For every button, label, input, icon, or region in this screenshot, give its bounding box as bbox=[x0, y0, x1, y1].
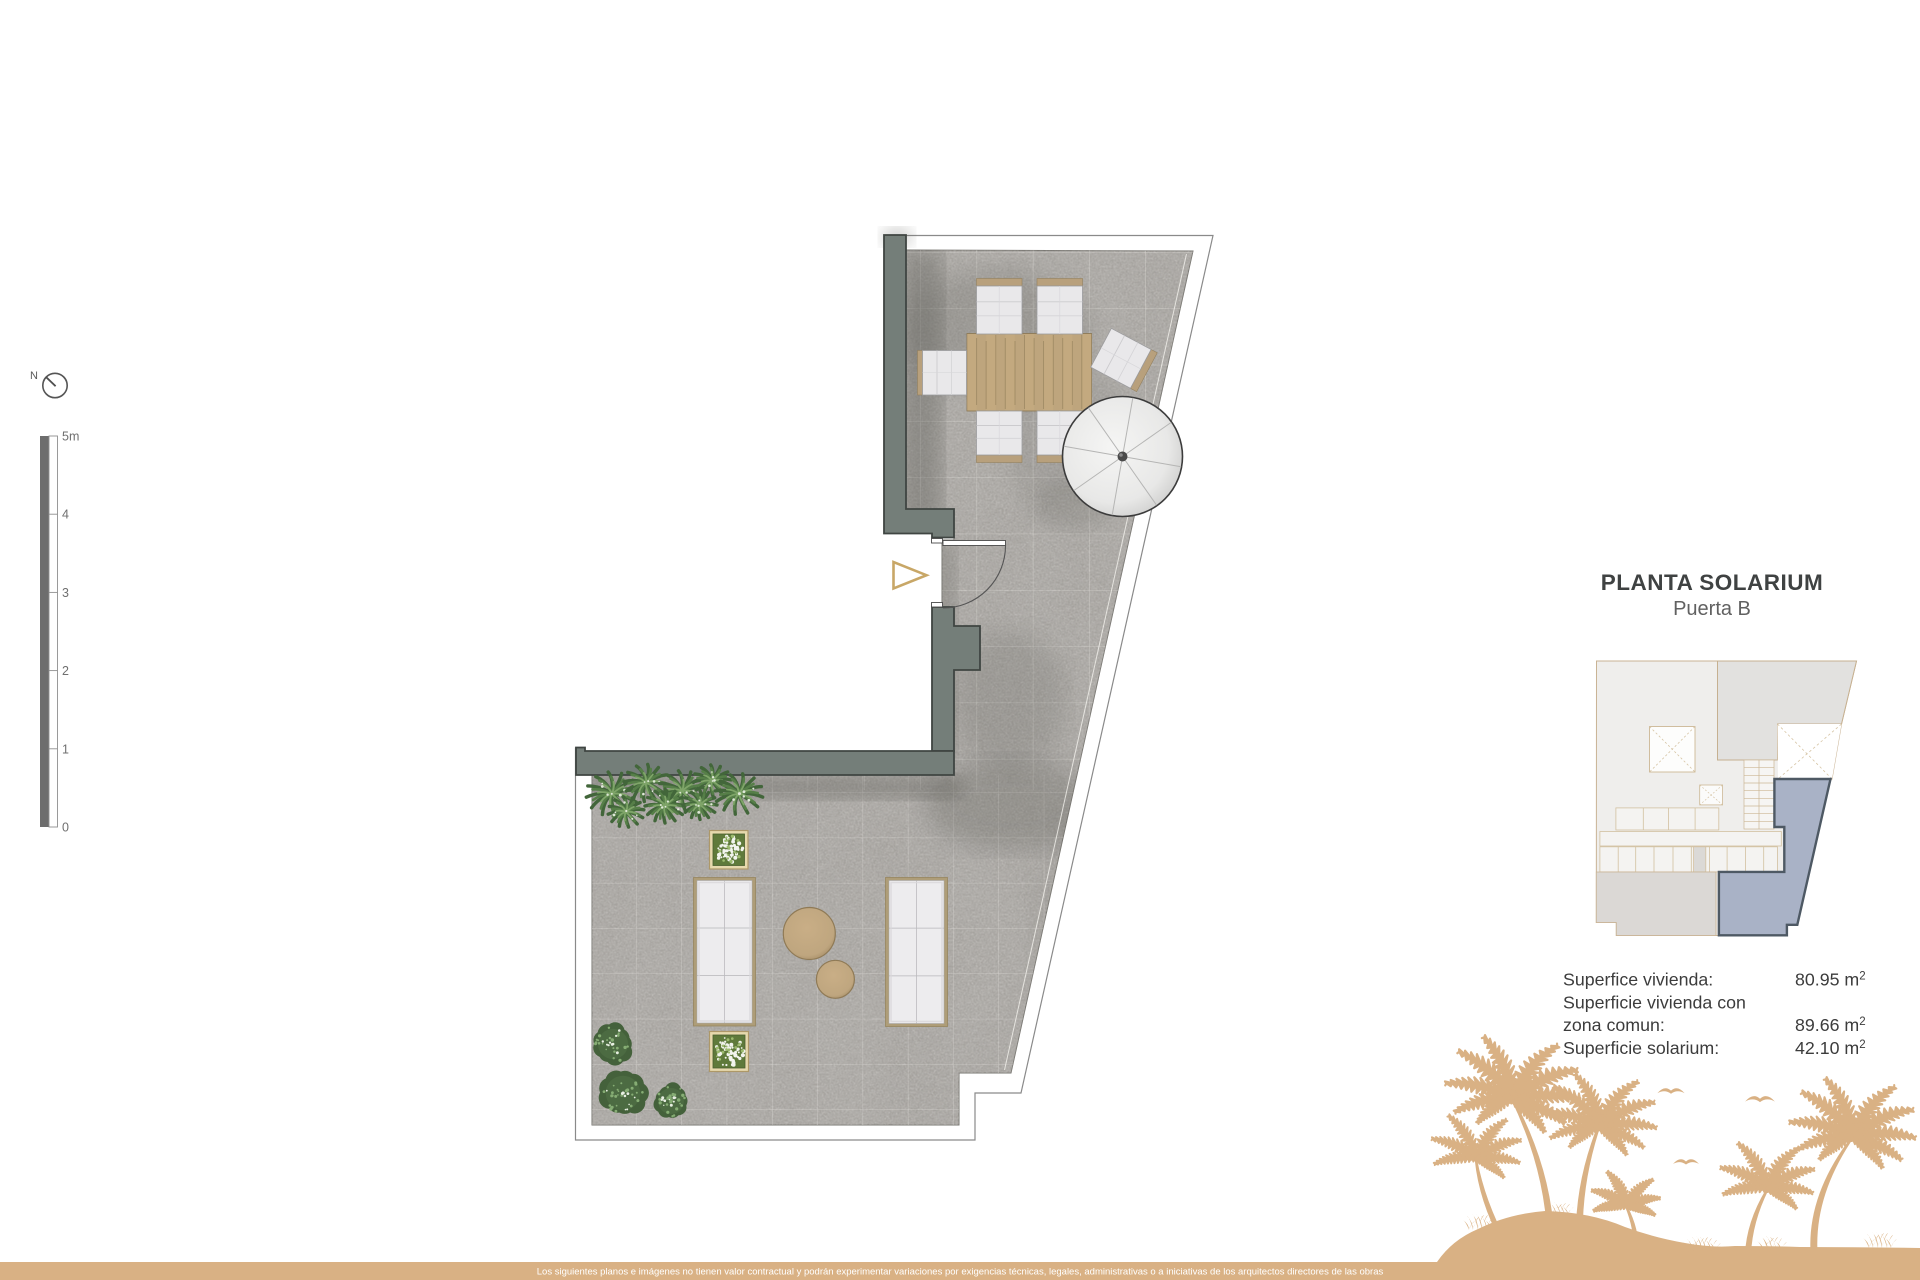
svg-text:PLANTA SOLARIUM: PLANTA SOLARIUM bbox=[1601, 570, 1823, 595]
svg-text:3: 3 bbox=[62, 586, 69, 600]
svg-text:5m: 5m bbox=[62, 430, 79, 444]
svg-text:80.95 m2: 80.95 m2 bbox=[1795, 970, 1866, 990]
svg-text:2: 2 bbox=[62, 664, 69, 678]
svg-text:Superfice vivienda:: Superfice vivienda: bbox=[1563, 970, 1713, 990]
svg-text:Los siguientes planos e imágen: Los siguientes planos e imágenes no tien… bbox=[537, 1267, 1384, 1278]
svg-text:N: N bbox=[30, 370, 38, 382]
svg-text:zona comun:: zona comun: bbox=[1563, 1015, 1665, 1035]
svg-text:0: 0 bbox=[62, 821, 69, 835]
svg-text:Superficie vivienda con: Superficie vivienda con bbox=[1563, 993, 1746, 1013]
svg-text:Puerta B: Puerta B bbox=[1673, 598, 1751, 620]
svg-text:4: 4 bbox=[62, 508, 69, 522]
svg-text:Superficie solarium:: Superficie solarium: bbox=[1563, 1038, 1719, 1058]
svg-text:42.10 m2: 42.10 m2 bbox=[1795, 1038, 1866, 1058]
svg-text:89.66 m2: 89.66 m2 bbox=[1795, 1015, 1866, 1035]
svg-text:1: 1 bbox=[62, 742, 69, 756]
